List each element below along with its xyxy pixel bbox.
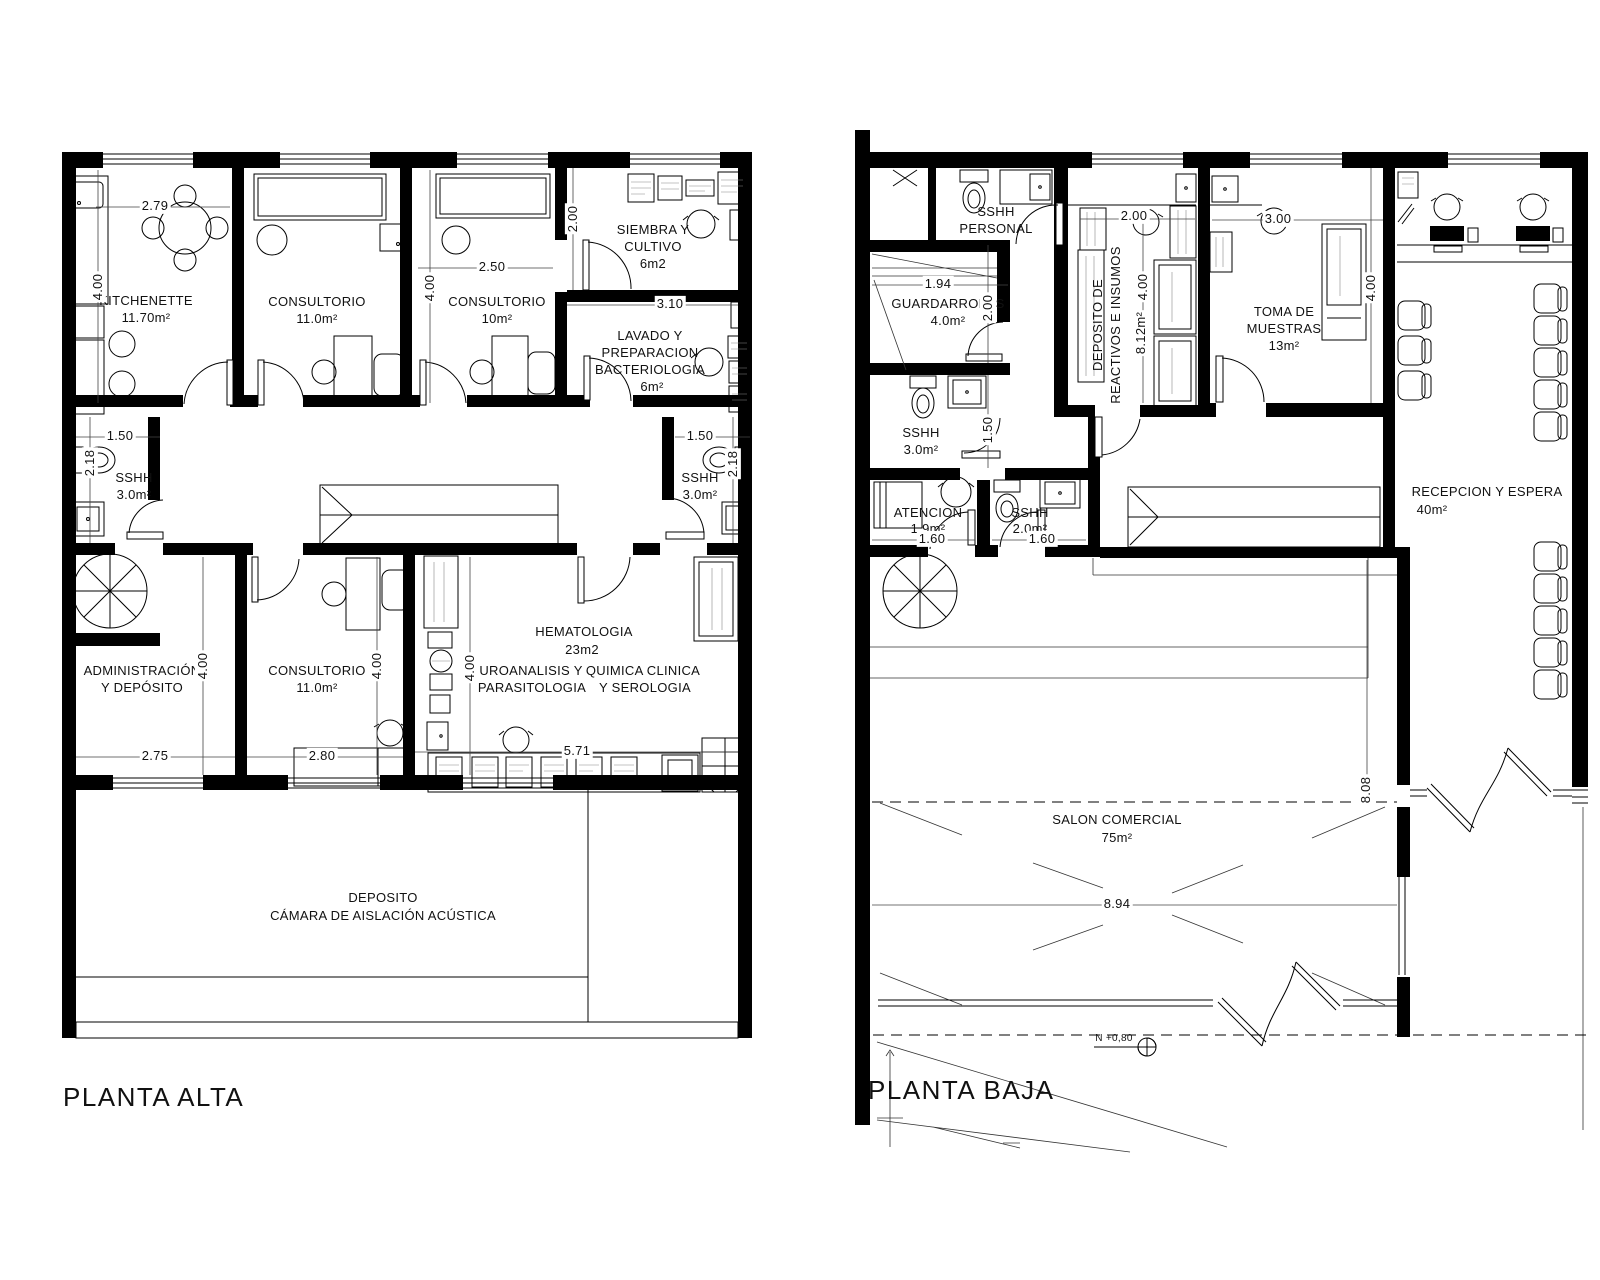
- room-label-uroanalisis: UROANALISIS Y: [479, 663, 582, 679]
- room-label-toma-2: MUESTRAS: [1247, 321, 1322, 337]
- dim-lavado-width: 3.10: [655, 296, 686, 312]
- dim-consultorio2-height: 4.00: [422, 273, 438, 304]
- dim-sshh-izq-width: 1.50: [105, 428, 136, 444]
- room-label-lavado-3: BACTERIOLOGIA: [595, 362, 705, 378]
- planta-baja-spiral-stair: [883, 554, 957, 628]
- dim-sshh3-height: 1.50: [980, 415, 996, 446]
- dim-reactivos-height: 4.00: [1135, 272, 1151, 303]
- room-label-toma: TOMA DE: [1254, 304, 1314, 320]
- planta-baja-salon-lines: [855, 748, 1588, 1046]
- dim-reactivos-width: 2.00: [1119, 208, 1150, 224]
- dim-hematologia-width: 5.71: [562, 743, 593, 759]
- room-area-recepcion: 40m²: [1417, 502, 1448, 518]
- dim-siembra-height: 2.00: [565, 204, 581, 235]
- room-label-administracion-2: Y DEPÓSITO: [101, 680, 183, 696]
- room-label-atencion: ATENCION: [894, 505, 963, 521]
- room-label-salon: SALON COMERCIAL: [1052, 812, 1181, 828]
- room-area-consultorio1: 11.0m²: [296, 311, 337, 327]
- planta-alta-stairs: [320, 485, 558, 545]
- room-label-lavado-2: PREPARACION: [602, 345, 699, 361]
- dim-sshh-der-height: 2.18: [725, 449, 741, 480]
- room-label-reactivos: DEPOSITO DE: [1090, 279, 1106, 371]
- room-label-siembra: SIEMBRA Y: [617, 222, 690, 238]
- room-label-recepcion: RECEPCION Y ESPERA: [1412, 484, 1563, 500]
- dim-toma-width: 3.00: [1263, 211, 1294, 227]
- plan-title-planta-baja: PLANTA BAJA: [868, 1075, 1055, 1106]
- room-label-reactivos-2: REACTIVOS E INSUMOS: [1108, 246, 1124, 403]
- room-area-consultorio3: 11.0m²: [296, 680, 337, 696]
- room-area-kitchenette: 11.70m²: [122, 310, 171, 326]
- room-area-lavado: 6m²: [640, 379, 663, 395]
- room-label-uroanalisis-2: PARASITOLOGIA: [478, 680, 586, 696]
- planta-alta-spiral-stair: [73, 554, 147, 628]
- dim-sshh-der-width: 1.50: [685, 428, 716, 444]
- dim-administracion-height: 4.00: [195, 651, 211, 682]
- planta-baja-windows: [1092, 154, 1588, 1130]
- room-area-reactivos: 8.12m²: [1133, 310, 1149, 356]
- room-label-sshh-personal-2: PERSONAL: [959, 221, 1032, 237]
- room-label-consultorio1: CONSULTORIO: [268, 294, 365, 310]
- dim-consultorio2-width: 2.50: [477, 259, 508, 275]
- room-label-siembra-2: CULTIVO: [624, 239, 681, 255]
- level-marker-label: N +0,80: [1095, 1033, 1132, 1046]
- dim-consultorio3-height: 4.00: [369, 651, 385, 682]
- room-label-sshh-der: SSHH: [681, 470, 718, 486]
- dim-salon-width: 8.94: [1102, 896, 1133, 912]
- dim-atencion-width: 1.60: [917, 531, 948, 547]
- dim-sshh-izq-height: 2.18: [82, 448, 98, 479]
- room-area-hematologia: 23m2: [565, 642, 599, 658]
- dim-sshh2-width: 1.60: [1027, 531, 1058, 547]
- planta-baja-walls: [855, 130, 1588, 1125]
- room-label-administracion: ADMINISTRACIÓN: [84, 663, 201, 679]
- room-label-sshh-izq: SSHH: [115, 470, 152, 486]
- room-area-consultorio2: 10m²: [482, 311, 513, 327]
- room-label-consultorio3: CONSULTORIO: [268, 663, 365, 679]
- room-area-siembra: 6m2: [640, 256, 666, 272]
- room-label-lavado: LAVADO Y: [617, 328, 682, 344]
- room-label-sshh2: SSHH: [1011, 505, 1048, 521]
- room-label-deposito-2: CÁMARA DE AISLACIÓN ACÚSTICA: [270, 908, 496, 924]
- room-label-quimica: QUIMICA CLINICA: [586, 663, 700, 679]
- dim-kitchenette-height: 4.00: [90, 272, 106, 303]
- room-area-sshh3: 3.0m²: [904, 442, 939, 458]
- planta-alta-deposito-lines: [76, 790, 588, 1022]
- room-label-consultorio2: CONSULTORIO: [448, 294, 545, 310]
- room-area-guardarropas: 4.0m²: [931, 313, 966, 329]
- dim-toma-height: 4.00: [1363, 273, 1379, 304]
- dim-salon-height: 8.08: [1358, 775, 1374, 806]
- dim-guardarropas-width: 1.94: [923, 276, 954, 292]
- room-label-deposito: DEPOSITO: [348, 890, 417, 906]
- room-area-sshh-izq: 3.0m²: [117, 487, 152, 503]
- room-area-sshh-der: 3.0m²: [683, 487, 718, 503]
- dim-hematologia-height: 4.00: [462, 653, 478, 684]
- dim-kitchenette-width: 2.79: [140, 198, 171, 214]
- dim-administracion-width: 2.75: [140, 748, 171, 764]
- floor-plan-sheet: KITCHENETTE 11.70m² CONSULTORIO 11.0m² C…: [0, 0, 1600, 1280]
- dim-guardarropas-height: 2.00: [980, 293, 996, 324]
- room-label-quimica-2: Y SEROLOGIA: [599, 680, 691, 696]
- room-label-sshh3: SSHH: [902, 425, 939, 441]
- plan-title-planta-alta: PLANTA ALTA: [63, 1082, 244, 1113]
- room-area-toma: 13m²: [1269, 338, 1300, 354]
- room-label-sshh-personal: SSHH: [977, 204, 1014, 220]
- room-area-salon: 75m²: [1102, 830, 1133, 846]
- room-label-kitchenette: KITCHENETTE: [99, 293, 193, 309]
- room-label-hematologia: HEMATOLOGIA: [535, 624, 632, 640]
- dim-consultorio3-width: 2.80: [307, 748, 338, 764]
